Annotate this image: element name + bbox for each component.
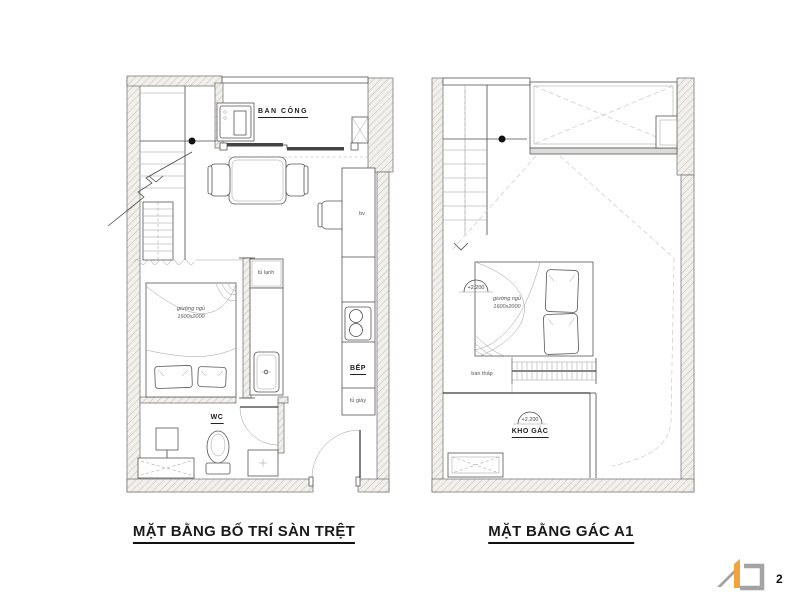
- shower-tray: [248, 450, 278, 476]
- pillow: [198, 367, 227, 388]
- stair-direction-arrow: [454, 243, 468, 250]
- bed-size-ground: 1600x2000: [177, 314, 204, 320]
- shoe-cabinet-label: tủ giày: [350, 398, 366, 404]
- wc-door: [240, 407, 278, 445]
- stove: [345, 307, 371, 340]
- stair-direction-arrow: [149, 176, 163, 182]
- pillow: [155, 365, 193, 388]
- ground-plan-title: MẶT BẰNG BỐ TRÍ SÀN TRỆT: [133, 523, 355, 544]
- bed-label-mezzanine: giường ngủ: [493, 296, 521, 302]
- void-opening: [530, 82, 677, 154]
- bed-level-label: +2.200: [468, 285, 485, 291]
- dining-chair-right: [286, 164, 308, 196]
- kitchen-label: BẾP: [350, 365, 366, 375]
- washing-machine: [217, 103, 254, 141]
- desk-label: bv: [359, 211, 365, 217]
- water-heater-box: [352, 117, 368, 143]
- bed-size-mezzanine: 1600x2000: [493, 304, 520, 310]
- sliding-door: [220, 143, 358, 151]
- living-dining: [208, 157, 349, 229]
- dining-chair-left: [208, 164, 230, 196]
- page-number: 2: [776, 572, 783, 586]
- wc-label: WC: [211, 414, 224, 424]
- low-table-label: bàn thấp: [471, 371, 492, 377]
- dining-table: [229, 157, 286, 204]
- railing: [512, 356, 596, 393]
- column-dot: [499, 136, 506, 143]
- mezzanine-plan-title: MẶT BẰNG GÁC A1: [488, 523, 634, 544]
- storage-box: [448, 453, 503, 477]
- vanity-counter: [138, 458, 194, 478]
- storage-label: KHO GÁC: [512, 428, 549, 438]
- wash-basin: [156, 428, 178, 460]
- stairs-mezzanine: [443, 85, 527, 250]
- toilet: [206, 431, 230, 474]
- pillow: [543, 313, 578, 354]
- floor-plan-linework: [0, 0, 800, 600]
- drawing-sheet: BAN CÔNG bv tủ lạnh giường ngủ 1600x2000…: [0, 0, 800, 600]
- kitchen: [250, 168, 375, 415]
- column-dot: [189, 138, 196, 145]
- bedroom-ground: [146, 283, 236, 397]
- ground-floor-plan: [108, 76, 393, 492]
- pillow: [545, 269, 578, 312]
- sink-counter: [250, 288, 283, 395]
- balcony-label: BAN CÔNG: [258, 108, 308, 118]
- entry-door: [309, 430, 360, 486]
- fridge-label: tủ lạnh: [258, 270, 275, 276]
- logo-area: 2: [712, 550, 792, 598]
- wc-room: [138, 407, 278, 478]
- bed-label-ground: giường ngủ: [177, 306, 205, 312]
- storage-level-label: +2.200: [522, 417, 539, 423]
